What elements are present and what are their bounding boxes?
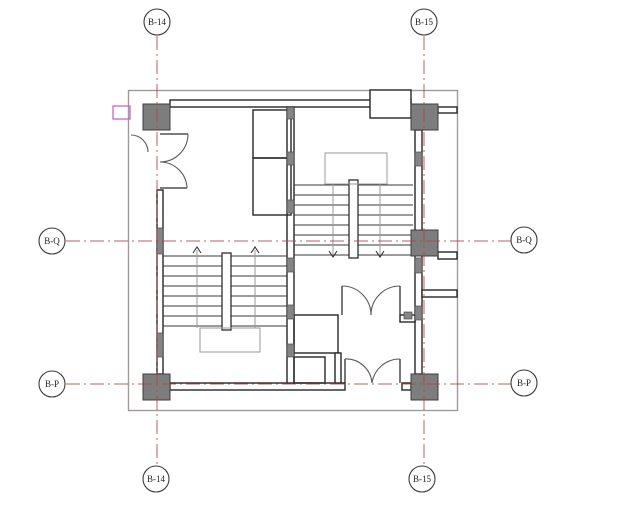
opening-highlight-marker — [113, 106, 130, 119]
wall-stub-right-top — [438, 107, 457, 113]
stair-lower-rail — [222, 253, 231, 330]
wall-fill — [287, 152, 294, 165]
stair-lower-walkline-box — [200, 328, 260, 352]
grid-bubble-bottom-b15: B-15 — [409, 466, 435, 492]
wall-fill — [404, 312, 412, 319]
door-swing-arc — [160, 134, 188, 162]
door-swing-arc — [160, 162, 187, 188]
grid-bubble-right-bp: B-P — [511, 370, 537, 396]
wall-fill — [415, 258, 422, 273]
wall-fill — [287, 305, 294, 319]
wall-topright-room — [370, 90, 411, 118]
grid-bubble-top-b14: B-14 — [144, 9, 170, 35]
stair-upper-rail — [349, 180, 358, 258]
wall-fill — [287, 258, 294, 272]
grid-bubble-left-bq: B-Q — [39, 228, 65, 254]
grid-bubble-label: B-15 — [413, 474, 432, 484]
door-swing-arc — [372, 359, 400, 383]
grid-bubble-label: B-P — [517, 378, 531, 388]
grid-bubble-label: B-14 — [148, 17, 167, 27]
wall-fill — [287, 200, 294, 213]
door-swing-arc — [345, 359, 372, 383]
floor-plan-canvas: B-14 B-15 B-14 B-15 B-Q B-P B-Q B-P — [0, 0, 640, 511]
grid-bubble-left-bp: B-P — [39, 371, 65, 397]
stair-lower — [163, 247, 287, 352]
wall-room-a — [294, 315, 338, 353]
wall-fill — [415, 306, 422, 320]
grid-bubble-right-bq: B-Q — [511, 227, 537, 253]
wall-stub-right-1 — [438, 252, 457, 259]
wall-fill — [415, 152, 422, 166]
door-swing-arc-small — [131, 135, 148, 152]
grid-bubble-label: B-Q — [44, 236, 60, 246]
grid-bubble-label: B-P — [45, 379, 59, 389]
doors — [131, 134, 400, 383]
grid-bubble-bottom-b14: B-14 — [143, 466, 169, 492]
wall-shaft-room-1 — [253, 110, 291, 158]
wall-stub-right-2 — [422, 290, 457, 297]
door-swing-arc — [371, 286, 400, 315]
wall-room-b — [294, 357, 325, 383]
wall-fill — [157, 333, 163, 357]
door-swing-arc — [342, 286, 371, 315]
grid-bubble-top-b15: B-15 — [411, 9, 437, 35]
grid-bubble-label: B-Q — [516, 235, 532, 245]
wall-fill — [287, 344, 294, 357]
stair-upper — [294, 153, 413, 258]
grid-bubble-label: B-14 — [147, 474, 166, 484]
wall-shaft-room-2 — [253, 158, 291, 215]
grid-bubble-label: B-15 — [415, 17, 434, 27]
wall-fill — [287, 107, 294, 119]
floor-plan-drawing: B-14 B-15 B-14 B-15 B-Q B-P B-Q B-P — [0, 0, 640, 511]
wall-seg-room-a — [335, 353, 341, 383]
